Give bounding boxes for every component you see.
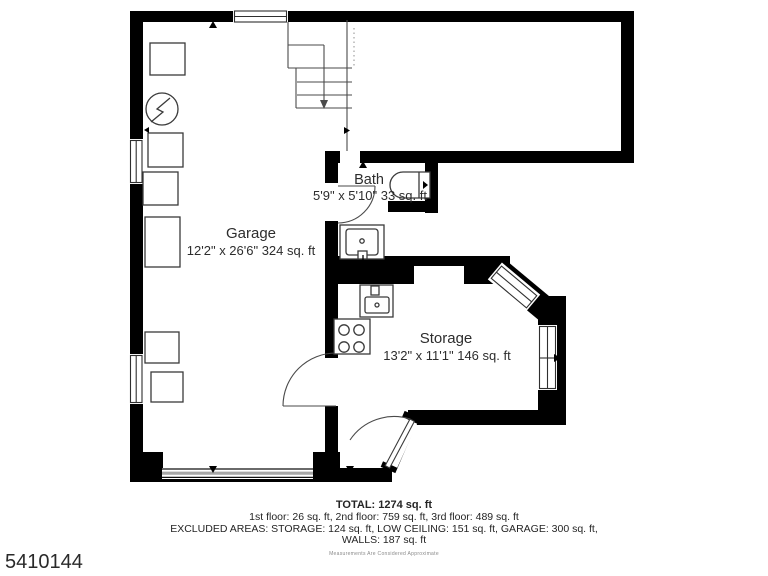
stairs (288, 20, 354, 151)
storage-sink (360, 285, 393, 317)
listing-id: 5410144 (5, 551, 83, 574)
bath-dims: 5'9" x 5'10" 33 sq. ft (313, 188, 427, 203)
electrical-meter-icon (146, 93, 178, 125)
floorplan-drawing: Garage 12'2" x 26'6" 324 sq. ft Bath 5'9… (0, 0, 768, 576)
storage-dims: 13'2" x 11'1" 146 sq. ft (383, 348, 511, 363)
garage-dims: 12'2" x 26'6" 324 sq. ft (187, 243, 316, 258)
summary-walls: WALLS: 187 sq. ft (0, 535, 768, 547)
storage-label: Storage (420, 330, 473, 347)
stove-icon (334, 319, 370, 354)
floorplan-page: Garage 12'2" x 26'6" 324 sq. ft Bath 5'9… (0, 0, 768, 576)
summary-block: TOTAL: 1274 sq. ft 1st floor: 26 sq. ft,… (0, 499, 768, 557)
bath-label: Bath (354, 172, 384, 188)
garage-label: Garage (226, 225, 276, 242)
summary-floors: 1st floor: 26 sq. ft, 2nd floor: 759 sq.… (0, 512, 768, 524)
summary-disclaimer: Measurements Are Considered Approximate (0, 551, 768, 557)
